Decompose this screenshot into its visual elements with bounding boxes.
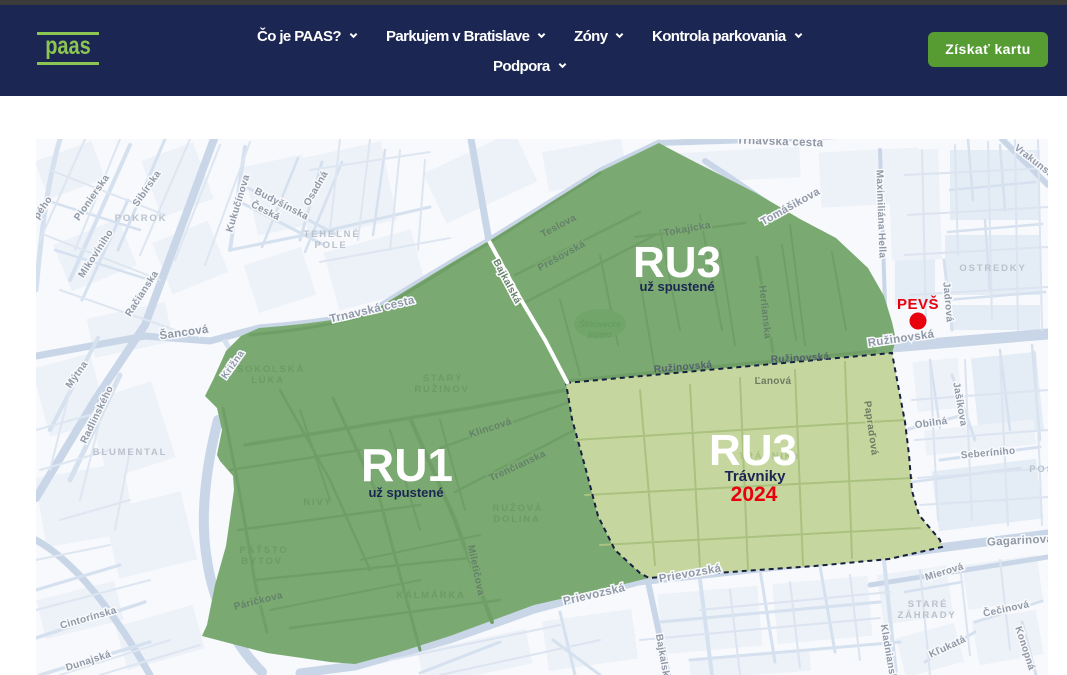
svg-text:jazero: jazero <box>587 329 611 339</box>
svg-text:RUŽINOV: RUŽINOV <box>414 383 469 395</box>
svg-text:Ľanová: Ľanová <box>755 376 792 387</box>
svg-text:SOKOLSKÁ: SOKOLSKÁ <box>237 364 305 375</box>
svg-text:NIVY: NIVY <box>303 497 332 508</box>
svg-text:OSTREDKY: OSTREDKY <box>959 263 1026 274</box>
svg-text:POŠ: POŠ <box>1029 463 1048 475</box>
svg-text:POLE: POLE <box>314 240 347 251</box>
svg-text:STARÝ: STARÝ <box>423 372 464 384</box>
svg-text:BLUMENTAL: BLUMENTAL <box>93 447 168 458</box>
svg-text:ZÁHRADY: ZÁHRADY <box>897 610 956 621</box>
svg-text:PEVŠ: PEVŠ <box>897 295 939 313</box>
svg-text:STARÉ: STARÉ <box>908 599 949 610</box>
svg-text:DOLINA: DOLINA <box>493 514 540 525</box>
svg-text:Štrkovecké: Štrkovecké <box>579 319 621 329</box>
svg-text:KÁLMÁRKA: KÁLMÁRKA <box>396 590 465 601</box>
svg-text:už spustené: už spustené <box>639 279 714 294</box>
svg-text:TEHELNÉ: TEHELNÉ <box>304 229 361 240</box>
svg-text:LÚKA: LÚKA <box>251 374 285 386</box>
svg-text:RUŽOVÁ: RUŽOVÁ <box>493 502 544 514</box>
svg-text:BYTOV: BYTOV <box>241 556 283 567</box>
svg-text:2024: 2024 <box>731 483 778 506</box>
svg-text:RU1: RU1 <box>361 439 453 491</box>
svg-text:už spustené: už spustené <box>368 485 443 500</box>
svg-text:POKROK: POKROK <box>115 213 168 224</box>
svg-text:PÄŤSTO: PÄŤSTO <box>239 544 288 556</box>
